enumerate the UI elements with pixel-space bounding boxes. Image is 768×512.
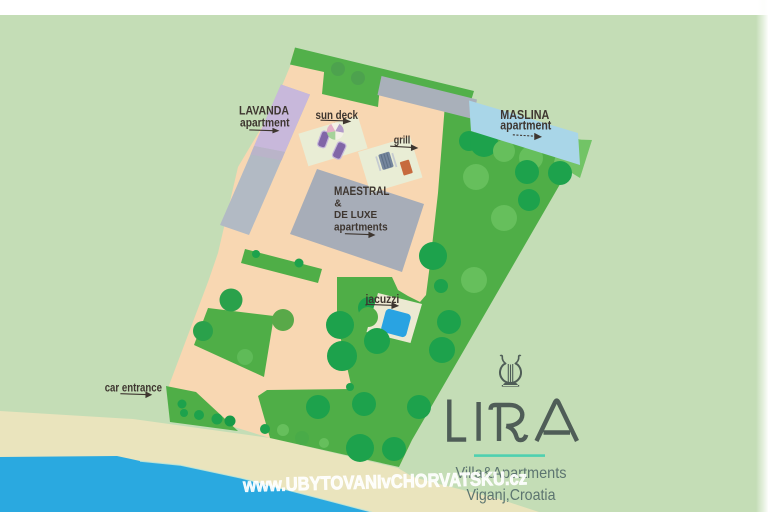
- svg-text:DE LUXE: DE LUXE: [334, 209, 377, 221]
- svg-text:apartment: apartment: [500, 119, 552, 133]
- svg-text:car entrance: car entrance: [105, 380, 163, 394]
- svg-text:MAESTRAL: MAESTRAL: [334, 184, 390, 198]
- svg-text:apartment: apartment: [240, 116, 290, 130]
- svg-text:apartments: apartments: [334, 221, 388, 233]
- svg-text:&: &: [334, 198, 341, 209]
- svg-text:grill: grill: [394, 135, 411, 147]
